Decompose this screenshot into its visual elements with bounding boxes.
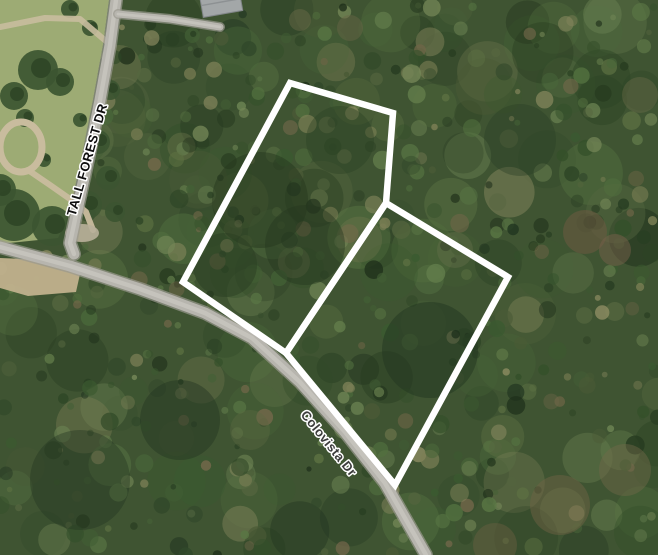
map-viewport[interactable]: TALL FOREST DRColovista Dr	[0, 0, 658, 555]
aerial-map[interactable]: TALL FOREST DRColovista Dr	[0, 0, 658, 555]
